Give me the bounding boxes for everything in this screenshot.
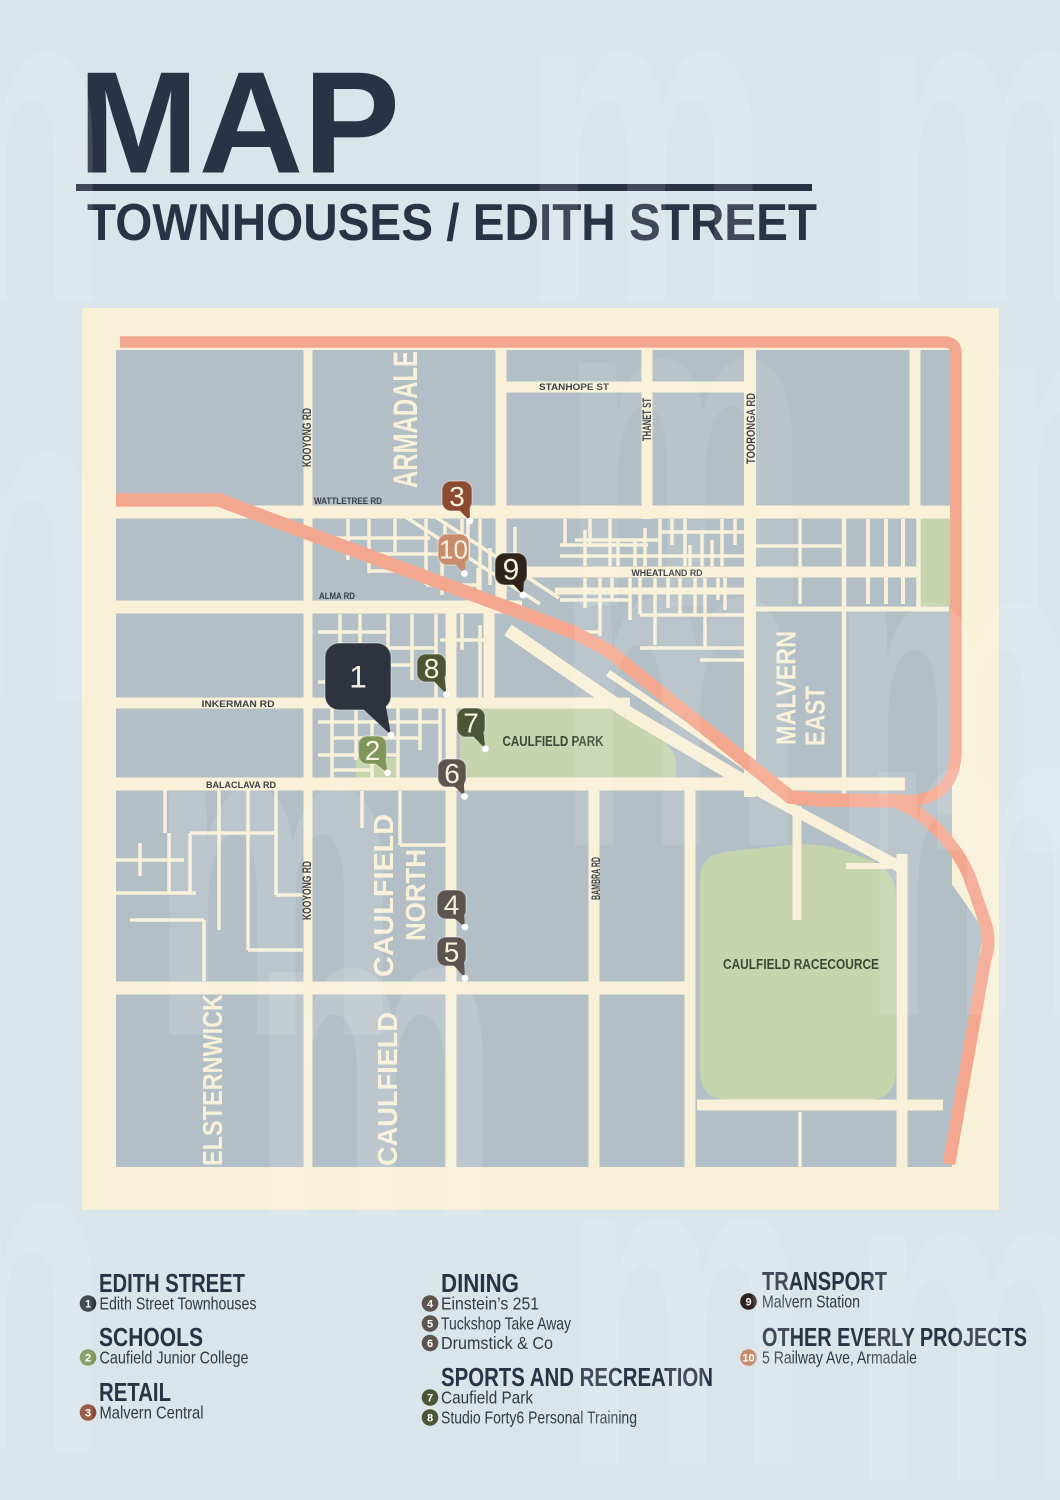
svg-text:10: 10 (439, 535, 468, 565)
svg-text:m: m (555, 430, 805, 943)
svg-text:Edith Street Townhouses: Edith Street Townhouses (100, 1294, 257, 1314)
svg-text:8: 8 (424, 653, 440, 684)
svg-text:m: m (0, 285, 110, 798)
svg-text:7: 7 (463, 707, 479, 738)
svg-text:m: m (560, 1050, 810, 1500)
svg-text:Malvern Central: Malvern Central (100, 1403, 204, 1423)
svg-text:Caufield Park: Caufield Park (441, 1388, 533, 1408)
svg-text:Tuckshop Take Away: Tuckshop Take Away (441, 1314, 571, 1334)
svg-text:CAULFIELD RACECOURCE: CAULFIELD RACECOURCE (723, 956, 879, 973)
svg-text:ARMADALE: ARMADALE (387, 351, 425, 488)
svg-text:6: 6 (427, 1338, 433, 1350)
svg-text:ALMA RD: ALMA RD (319, 591, 355, 601)
svg-text:7: 7 (427, 1393, 433, 1405)
svg-text:m: m (860, 600, 1060, 1113)
svg-text:6: 6 (444, 758, 460, 789)
svg-text:Caufield Junior College: Caufield Junior College (100, 1348, 249, 1368)
svg-text:3: 3 (449, 481, 465, 512)
svg-text:MAP: MAP (78, 42, 400, 204)
svg-text:WATTLETREE RD: WATTLETREE RD (314, 496, 382, 506)
svg-text:m: m (250, 800, 500, 1313)
svg-text:Drumstick & Co: Drumstick & Co (441, 1333, 553, 1353)
svg-text:m: m (850, 1065, 1060, 1500)
svg-text:5: 5 (427, 1319, 433, 1331)
svg-text:9: 9 (503, 554, 520, 587)
svg-text:8: 8 (427, 1413, 433, 1425)
svg-text:KOOYONG RD: KOOYONG RD (302, 408, 314, 467)
svg-text:m: m (0, 1035, 110, 1500)
